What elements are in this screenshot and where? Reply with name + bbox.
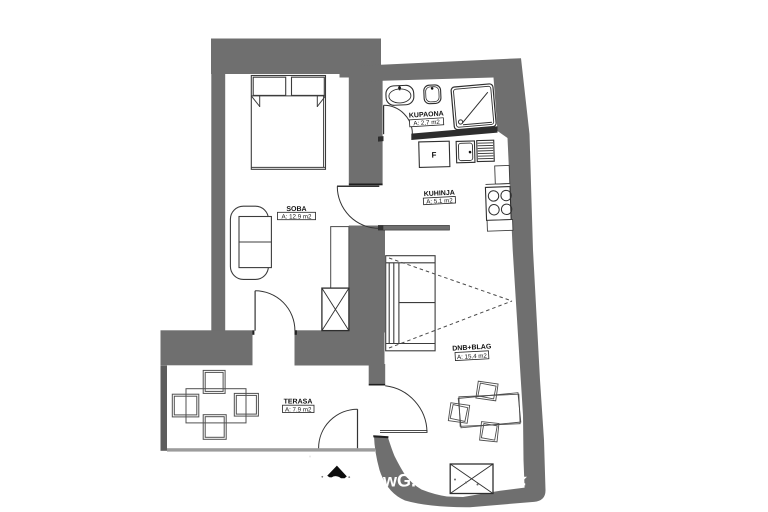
svg-text:A: 12.9 m2: A: 12.9 m2 — [282, 213, 312, 220]
svg-text:TERASA: TERASA — [284, 398, 313, 405]
svg-text:A: 7.9 m2: A: 7.9 m2 — [285, 406, 312, 413]
svg-text:F: F — [432, 150, 437, 159]
svg-text:wG.: wG. — [382, 471, 416, 491]
svg-text:SOBA: SOBA — [286, 206, 306, 213]
svg-text:A: 5.1 m2: A: 5.1 m2 — [426, 197, 453, 205]
